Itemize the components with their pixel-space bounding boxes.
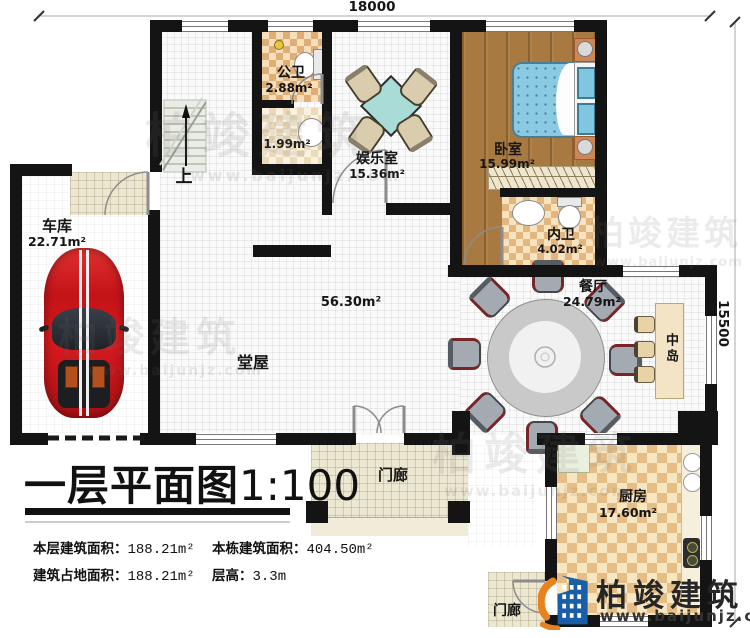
stat-floor-area: 本层建筑面积：188.21m² [33,537,195,558]
stat-total-area: 本栋建筑面积：404.50m² [212,537,374,558]
title-underline [25,508,290,515]
stat-footprint-area: 建筑占地面积：188.21m² [33,564,195,585]
floor-plan: 车库 22.71m² 公卫 2.88m² 1.99m² 娱乐室 15.36m² … [0,0,750,638]
room-label-public-bath: 公卫 [277,66,305,81]
logo-building-icon [538,570,596,630]
watermark: 柏竣建筑 www.baijunjz.com [590,206,743,270]
room-area-garage: 22.71m² [28,235,86,249]
watermark: 柏竣建筑 www.baijunjz.com [432,418,640,500]
watermark: 柏竣建筑 www.baijunjz.com [145,96,401,185]
room-area-dining: 24.79m² [563,295,621,309]
watermark: 柏竣建筑 www.baijunjz.com [58,305,263,379]
room-area-bedroom: 15.99m² [479,158,535,171]
plan-title: 一层平面图1:100 [24,452,360,513]
room-label-front-porch: 门廊 [378,467,408,484]
stat-storey-height: 层高：3.3m [212,564,286,585]
room-area-public-bath: 2.88m² [265,82,312,95]
room-area-kitchen: 17.60m² [599,506,657,520]
room-label-island: 中岛 [661,333,680,365]
room-area-main-hall: 56.30m² [321,296,381,310]
dimension-depth: 15500 [715,300,731,347]
room-label-garage: 车库 [42,218,72,235]
plan-title-text: 一层平面图 [24,461,239,510]
title-underline-light [25,521,290,523]
logo-url: www.baijunjz.com [600,607,750,625]
plan-title-scale: 1:100 [239,461,360,510]
room-area-ensuite: 4.02m² [537,243,582,256]
dimension-width: 18000 [349,0,396,15]
company-logo: 柏竣建筑 www.baijunjz.com [538,568,748,630]
room-label-side-porch: 门廊 [493,604,521,619]
